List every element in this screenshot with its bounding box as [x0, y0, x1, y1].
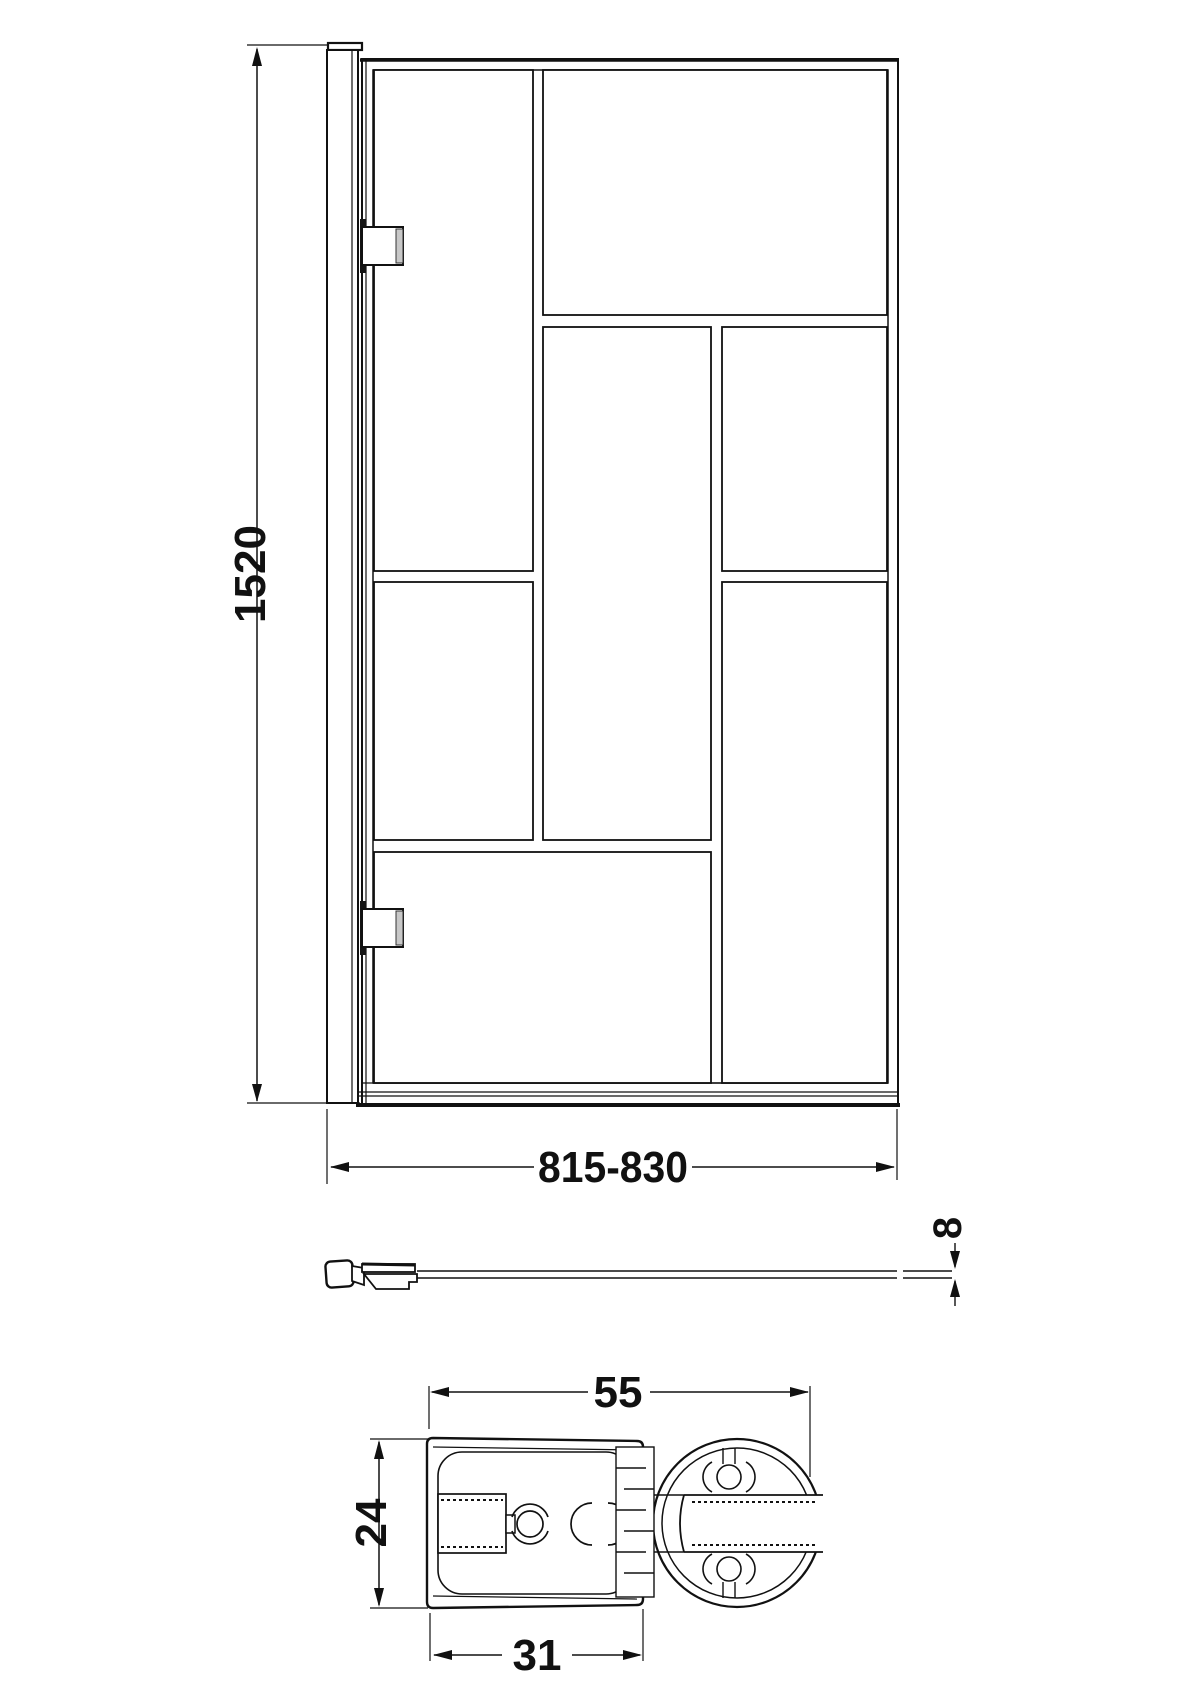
- arrowhead-down: [252, 1084, 262, 1102]
- clamp-body: [364, 1274, 417, 1289]
- hinge-bracket-lower: [360, 901, 403, 955]
- glass-pane-mid-right: [722, 327, 887, 571]
- height-dimension-label: 1520: [226, 525, 275, 623]
- hinge-lip: [396, 229, 403, 263]
- clip-roller: [717, 1557, 741, 1581]
- glass-pane-bottom-right: [722, 582, 887, 1083]
- tongue-neck: [506, 1515, 515, 1533]
- interlock-body: [616, 1447, 654, 1597]
- shower-screen-drawing: 1520: [0, 0, 1200, 1698]
- glass-thickness-dimension: 8: [926, 1217, 970, 1306]
- arrowhead-right: [790, 1387, 809, 1397]
- side-profile-view: 8: [325, 1217, 970, 1306]
- slot-cutout: [684, 1495, 826, 1552]
- glass-pane-mid-left: [374, 582, 533, 840]
- arrowhead-left: [433, 1650, 452, 1660]
- cross-section-view: 55 24: [347, 1368, 826, 1680]
- wall-profile-cap: [328, 43, 362, 50]
- arrowhead-down: [950, 1251, 960, 1269]
- section-height-dimension: 24: [347, 1439, 428, 1608]
- arrowhead-right: [623, 1650, 642, 1660]
- section-channel-width-label: 31: [513, 1631, 562, 1680]
- hinge-lip: [396, 911, 403, 945]
- width-dimension: 815-830: [327, 1109, 897, 1192]
- hinge-bracket-upper: [360, 219, 403, 273]
- arrowhead-up: [950, 1279, 960, 1297]
- wall-profile-body: [327, 50, 358, 1103]
- clamp-top-edge: [362, 1264, 415, 1265]
- section-depth-label: 55: [594, 1368, 643, 1417]
- glass-pane-top-right: [543, 70, 887, 315]
- section-height-label: 24: [347, 1498, 396, 1547]
- glass-pane-center: [543, 327, 711, 840]
- arrowhead-up: [252, 47, 262, 66]
- glass-thickness-label: 8: [926, 1217, 970, 1239]
- glass-edge: [417, 1271, 952, 1278]
- section-channel-width-dimension: 31: [430, 1609, 643, 1680]
- glass-tongue: [438, 1494, 506, 1553]
- clip-roller: [717, 1465, 741, 1489]
- glass-pane-top-left: [374, 70, 533, 571]
- arrowhead-up: [374, 1440, 384, 1459]
- wall-profile: [327, 43, 362, 1103]
- channel-profile: [427, 1438, 643, 1608]
- glass-pane-bottom-left: [374, 852, 711, 1083]
- arrowhead-left: [330, 1162, 349, 1172]
- arrowhead-down: [374, 1588, 384, 1607]
- arrowhead-left: [430, 1387, 449, 1397]
- interlock-strip: [616, 1447, 654, 1597]
- front-elevation-view: 1520: [226, 43, 900, 1192]
- round-profile: [653, 1439, 826, 1607]
- width-dimension-label: 815-830: [538, 1143, 688, 1192]
- technical-drawing-page: 1520: [0, 0, 1200, 1698]
- wall-block-section: [325, 1260, 354, 1288]
- clip-roller: [517, 1511, 543, 1537]
- arrowhead-right: [876, 1162, 895, 1172]
